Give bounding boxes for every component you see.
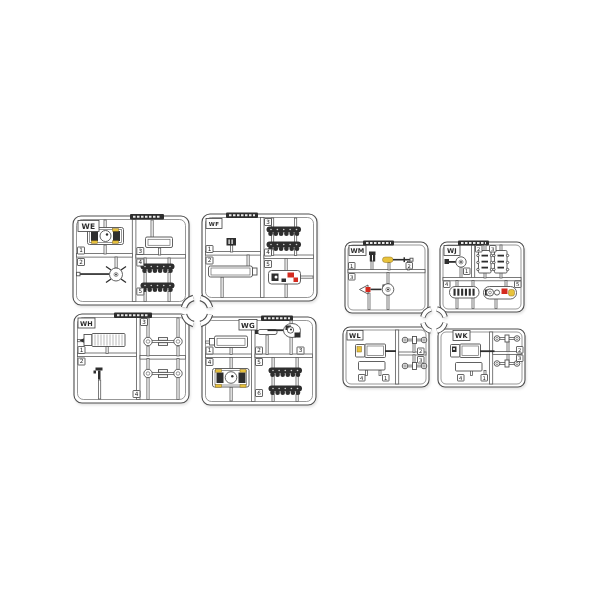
frame-label-text: WL [349,332,361,340]
part-number-text: 3 [142,319,146,325]
part-number-tag: 2 [418,348,425,355]
frame-label-text: WF [209,221,219,227]
sprue-stem [300,276,313,278]
part-number-tag: 3 [297,347,304,354]
part-number-text: 1 [79,247,83,253]
sprue-stem [456,298,458,309]
sprue-stem [177,359,179,371]
part-number-text: 4 [135,391,139,397]
sprue-stem [368,293,370,310]
part-number-text: 2 [477,246,480,252]
sprue-stem [507,342,509,352]
part-wheel-axle [494,335,520,342]
frame-label-text: WH [80,320,93,328]
part-ladder-frame [477,251,493,274]
sprue-cluster-left: WE 12345 [73,213,317,406]
part-code-strip [130,214,164,220]
part-number-tag: 2 [256,347,263,354]
sprue-stem [151,220,153,238]
part-number-tag: 4 [137,259,144,266]
sprue-stem [379,370,381,376]
sprue-stem [285,259,287,272]
part-number-tag: 2 [476,246,483,253]
frame-label: WM [349,246,366,256]
part-code-strip [363,241,394,246]
sprue-stem [388,263,390,271]
frame-label: WH [78,318,95,328]
part-tank-top-view [213,369,250,388]
frame-label-text: WJ [447,247,457,255]
part-flatbed [359,362,386,371]
part-number-tag: 1 [383,375,390,382]
sprue-joint-ring [423,309,445,331]
frame-label: WF [206,219,222,229]
part-number-text: 2 [257,347,261,353]
part-number-text: 2 [208,257,212,263]
frame-label-text: WE [82,222,96,231]
part-number-tag: 5 [265,261,272,268]
runner-bar [206,354,252,358]
part-number-text: 6 [257,390,261,396]
part-number-tag: 1 [481,375,488,382]
sprue-stem [231,245,233,252]
part-number-tag: 2 [78,259,85,266]
sprue-stem [230,348,232,355]
part-dark-block [227,238,237,246]
sprue-stem [371,261,373,270]
sprue-stem [272,395,274,402]
part-number-text: 1 [350,263,353,269]
sprue-frame-wm: WM 123 [345,241,428,314]
sprue-stem [221,277,223,298]
sprue-stem [295,218,297,228]
runner-divider [471,245,474,279]
part-number-tag: 3 [517,355,524,362]
part-number-text: 2 [419,348,422,354]
runner-divider [260,218,264,298]
part-ladder-frame [493,251,509,274]
part-number-text: 3 [419,357,422,363]
sprue-stem [147,346,149,356]
part-number-text: 2 [80,358,84,364]
sprue-joint-ring [184,298,210,324]
frame-label-text: WM [350,247,364,255]
part-number-tag: 1 [349,263,356,270]
part-number-tag: 2 [406,263,413,270]
sprue-stem [495,299,497,309]
part-hull-box [146,237,173,248]
part-number-text: 3 [299,347,303,353]
frame-label: WE [78,221,99,232]
sprue-stem [366,370,368,376]
part-barrel-cylinder [210,336,248,348]
runner-divider [251,321,255,402]
sprue-stem [177,378,179,400]
part-number-text: 1 [80,347,84,353]
part-radiator [450,287,480,299]
sprue-stem [230,358,232,370]
part-number-tag: 4 [133,391,140,398]
part-wheel-axle [494,360,520,367]
part-number-tag: 3 [137,248,144,255]
part-number-tag: 1 [206,246,213,253]
part-number-text: 2 [79,259,83,265]
sprue-stem [159,248,161,255]
part-number-tag: 2 [78,358,85,365]
part-number-text: 3 [266,219,270,225]
part-number-tag: 3 [141,319,148,326]
sprue-stem [147,378,149,400]
part-wheel-axle [402,337,427,344]
product-photo-canvas: WE 12345 [0,0,600,600]
runner-divider [489,332,492,384]
part-number-tag: 1 [78,347,85,354]
runner-bar [255,354,313,358]
part-number-text: 3 [491,246,494,252]
part-number-tag: 4 [359,375,366,382]
part-number-tag: 3 [349,274,356,281]
part-number-tag: 4 [458,375,465,382]
part-number-text: 5 [516,281,519,287]
part-number-tag: 3 [490,246,497,253]
part-number-tag: 1 [78,247,85,254]
sprue-cluster-right: WM 123 [343,241,525,388]
part-wheel-axle [144,369,182,377]
part-number-tag: 3 [418,357,425,364]
sprue-frame-we: WE 12345 [73,214,189,305]
part-number-text: 2 [518,347,521,353]
sprue-stem [272,358,274,369]
frame-label: WL [347,331,363,341]
frame-label: WK [453,331,470,341]
frame-label: WJ [444,246,460,256]
part-number-text: 2 [408,263,411,269]
sprue-stem [115,257,117,268]
part-number-text: 4 [266,249,270,255]
part-vehicle-red-yellow [484,287,517,300]
sprue-stem [177,318,179,338]
part-number-tag: 2 [206,257,213,264]
part-number-text: 1 [208,246,212,252]
sprue-stem [144,292,146,302]
part-number-text: 3 [350,274,353,280]
sprue-frame-wl: WL 1234 [343,327,429,387]
sprue-stem [230,387,232,401]
frame-label-text: WK [455,332,468,340]
part-vehicle-red [269,271,301,285]
sprue-stem [104,245,106,254]
part-number-text: 5 [138,288,142,294]
part-flatbed [456,363,483,372]
part-code-strip [261,316,293,322]
part-wheel-axle [402,363,427,370]
part-number-tag: 4 [206,359,213,366]
part-number-tag: 4 [265,249,272,256]
part-number-tag: 3 [265,219,272,226]
part-number-tag: 1 [464,268,471,275]
runner-divider [132,220,136,302]
part-number-text: 1 [483,375,486,381]
sprue-stem [285,284,287,298]
part-number-tag: 2 [517,347,524,354]
sprue-stem [296,395,298,402]
part-number-tag: 4 [444,281,451,288]
frame-label: WG [239,320,257,331]
sprue-frame-wh: WH 1234 [74,313,189,404]
sprue-stem [387,273,389,284]
part-number-tag: 5 [515,281,522,288]
sprue-frame-wf: WF 12345 [202,213,317,302]
runner-bar [348,270,425,273]
part-number-text: 1 [465,268,468,274]
sprue-frame-wg: WG 123456 [202,316,316,406]
sprue-stem [296,358,298,369]
sprue-frame-wk: WK 1234 [438,329,525,387]
part-number-tag: 5 [137,288,144,295]
runner-divider [395,330,398,384]
sprue-frame-wj: WJ 12345 [440,241,524,313]
sprue-stem [247,255,249,267]
runner-divider [136,318,140,400]
frame-label-text: WG [241,322,255,330]
part-number-tag: 1 [206,347,213,354]
part-number-text: 1 [208,347,212,353]
part-code-strip [114,313,152,319]
sprue-illustration: WE 12345 [0,0,600,600]
part-number-text: 3 [518,355,521,361]
part-number-text: 1 [384,375,387,381]
part-code-strip [226,213,258,219]
sprue-stem [99,380,101,399]
sprue-stem [460,267,462,278]
part-hull-long [209,266,258,277]
sprue-stem [144,273,146,284]
sprue-stem [266,335,268,355]
part-number-text: 4 [208,359,212,365]
part-number-tag: 6 [256,390,263,397]
sprue-stem [290,337,292,355]
part-number-text: 4 [138,259,142,265]
sprue-stem [147,359,149,371]
sprue-stem [387,295,389,310]
sprue-stem [177,346,179,356]
part-wheel-axle [144,337,182,345]
part-number-text: 5 [266,261,270,267]
part-number-text: 5 [257,359,261,365]
runner-bar [443,278,521,281]
sprue-stem [106,347,108,354]
part-ribbed-cylinder [80,334,126,347]
part-number-text: 3 [138,248,142,254]
part-number-tag: 5 [256,359,263,366]
sprue-stem [168,292,170,302]
sprue-stem [168,273,170,284]
sprue-stem [472,298,474,309]
sprue-stem [413,343,415,353]
